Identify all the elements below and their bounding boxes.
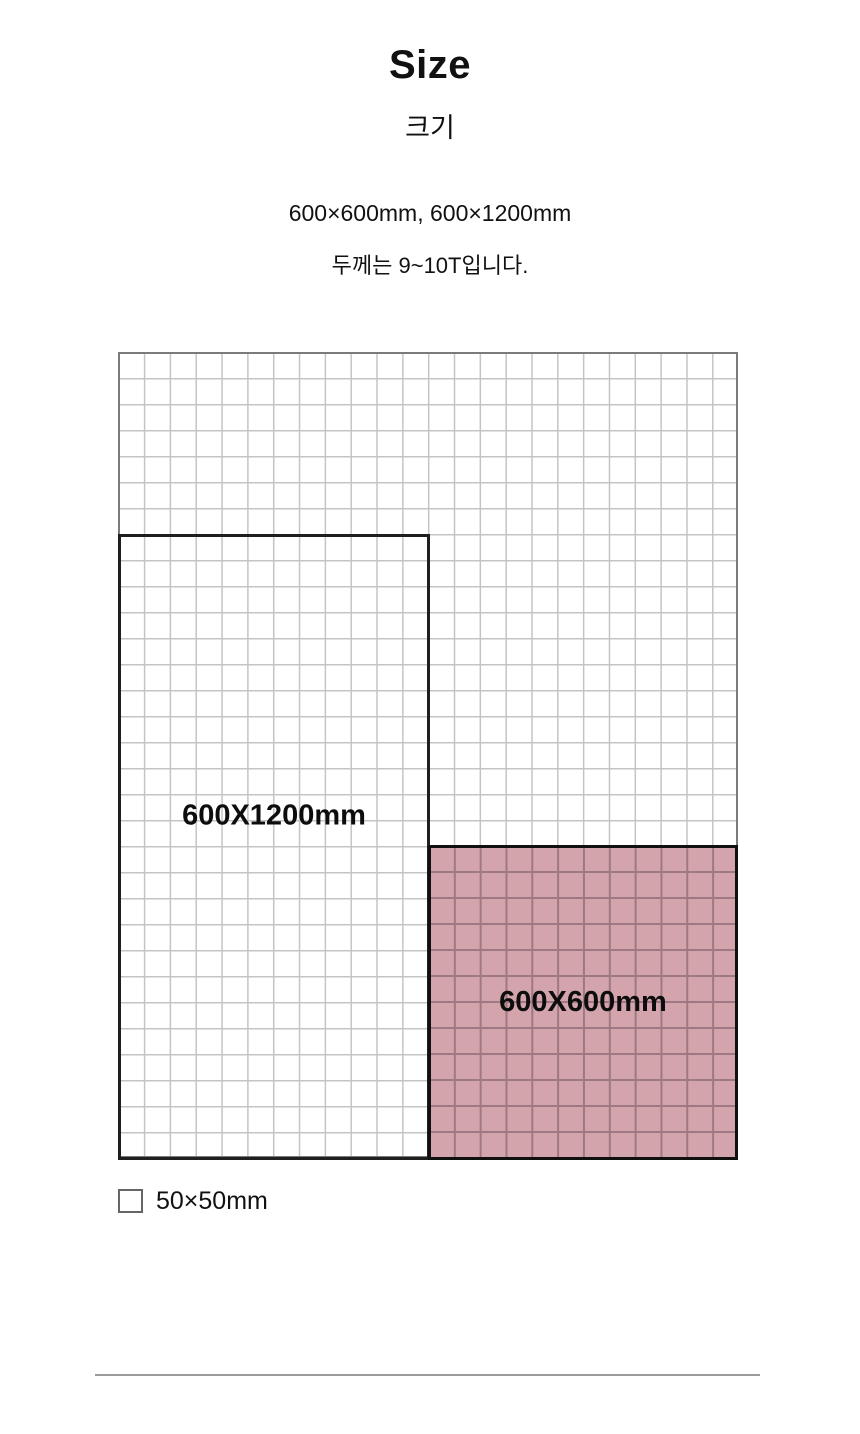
grid-cell-swatch-icon <box>118 1189 143 1213</box>
size-spec-text: 600×600mm, 600×1200mm <box>0 201 860 226</box>
panel-600x1200: 600X1200mm <box>118 534 430 1160</box>
grid-scale-legend: 50×50mm <box>118 1188 268 1214</box>
panel-600x600: 600X600mm <box>428 845 738 1160</box>
grid-cell-size-label: 50×50mm <box>156 1188 268 1214</box>
size-info-page: Size 크기 600×600mm, 600×1200mm 두께는 9~10T입… <box>0 0 860 1434</box>
page-title: Size <box>0 44 860 86</box>
panel-600x600-label: 600X600mm <box>499 986 667 1019</box>
thickness-spec-text: 두께는 9~10T입니다. <box>0 254 860 278</box>
panel-600x1200-label: 600X1200mm <box>121 800 427 833</box>
size-diagram-grid: 600X1200mm 600X600mm <box>118 352 738 1158</box>
section-divider <box>95 1374 760 1376</box>
page-subtitle: 크기 <box>0 114 860 142</box>
